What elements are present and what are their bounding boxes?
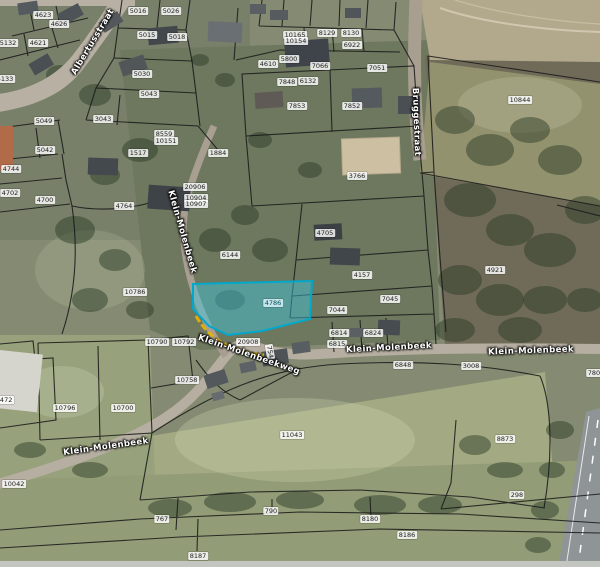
white-building — [0, 350, 43, 412]
aerial-map-graphics — [0, 0, 600, 567]
sand-arena — [341, 137, 400, 175]
image-edge-strip — [0, 561, 600, 567]
map-canvas[interactable]: 4623462646215132513350165026501550185030… — [0, 0, 600, 567]
orange-building — [0, 126, 13, 170]
